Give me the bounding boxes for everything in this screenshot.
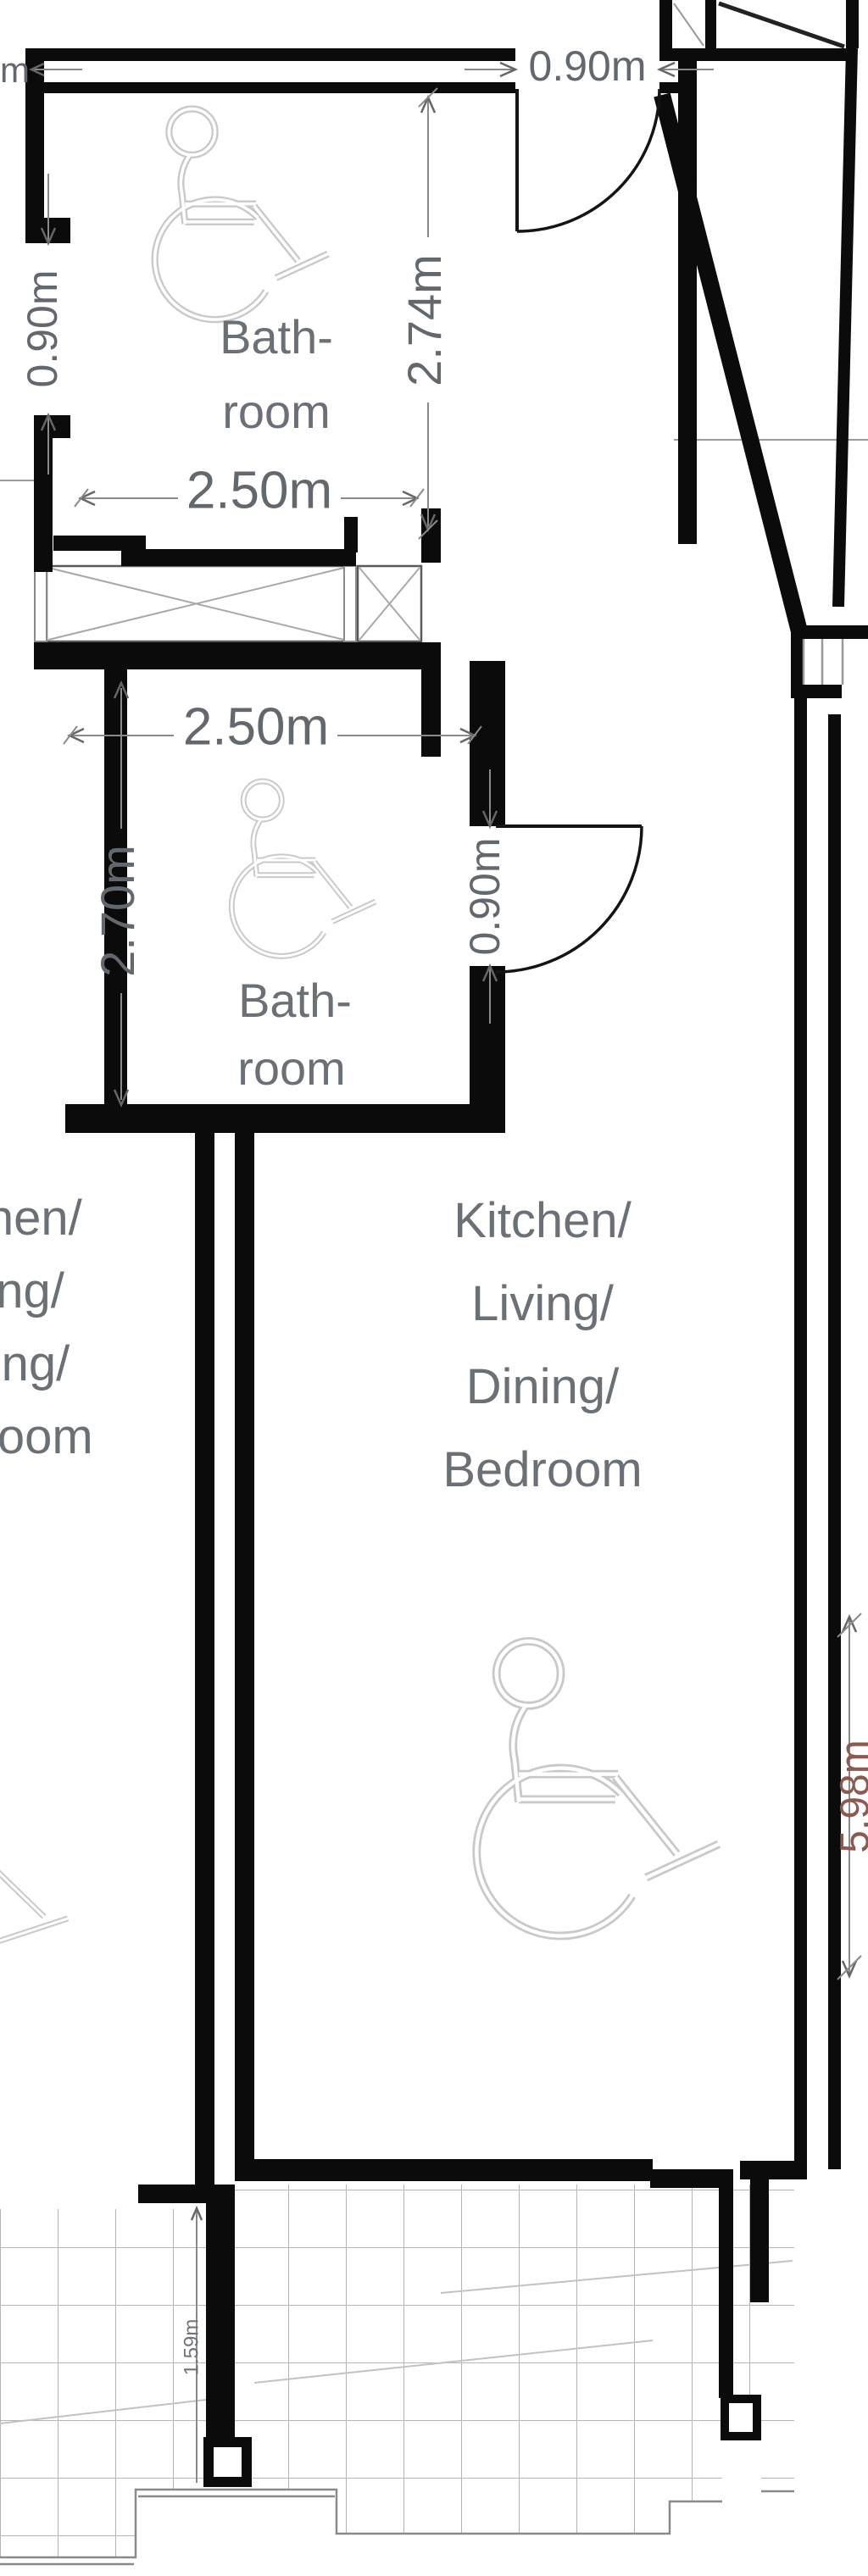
room-label-bath2-line2: room <box>237 1041 346 1095</box>
wall-main-left <box>235 1133 254 2169</box>
room-label-bath2-line1: Bath- <box>238 974 352 1027</box>
bath2-door-swing-arc <box>496 826 642 972</box>
entry-door-swing-arc <box>517 89 659 231</box>
room-label-neighbor-line1: Kitchen/ <box>0 1191 83 1246</box>
void-shaft-right <box>344 566 421 641</box>
wall-bath2-right-upper <box>470 661 505 826</box>
wall-main-bottom <box>235 2159 653 2181</box>
top-cell-braces <box>674 3 844 47</box>
room-label-bath1-line1: Bath- <box>220 310 333 364</box>
wheelchair-icon-bath1 <box>155 109 328 320</box>
wall-bath2-bottom <box>65 1104 505 1133</box>
wall-bath2-top <box>34 642 421 669</box>
room-label-main-line1: Kitchen/ <box>453 1193 632 1248</box>
room-label-neighbor-line2: Living/ <box>0 1263 65 1319</box>
wall-bath1-right <box>678 48 697 544</box>
dim-bath2-door: 0.90m <box>461 838 509 956</box>
wall-bath1-left-lower <box>34 438 53 572</box>
entry-door <box>517 89 659 231</box>
window-mullions <box>804 639 843 685</box>
dim-right-side: 5.98m <box>833 1740 868 1852</box>
room-label-main-line2: Living/ <box>471 1276 615 1331</box>
dim-bath1-depth: 2.74m <box>398 254 451 386</box>
wall-neighbor-right <box>195 1133 214 2192</box>
column-divider-end <box>203 2437 252 2487</box>
void-shaft-left <box>35 566 346 641</box>
room-label-main-line4: Bedroom <box>442 1442 642 1497</box>
extension-lines <box>0 440 868 480</box>
dim-bath1-width: 2.50m <box>186 461 332 519</box>
column-main <box>721 2395 761 2440</box>
floor-plan-canvas: m 0.90m 0.90m 2.50m 2.74m Bath- room 2.5… <box>0 0 868 2576</box>
terrace-left <box>0 2209 206 2557</box>
dim-bath1-side-door: 0.90m <box>19 270 66 388</box>
wall-stub <box>421 508 441 563</box>
dimension-graphics <box>31 63 861 2483</box>
room-label-main-line3: Dining/ <box>466 1359 620 1414</box>
wall-top-outer-left <box>25 48 515 61</box>
wheelchair-icon-main <box>476 1641 719 1936</box>
dim-entry-door: 0.90m <box>529 42 647 90</box>
bath2-door <box>496 826 642 972</box>
dim-bath2-width: 2.50m <box>183 697 329 756</box>
room-label-bath1-line2: room <box>222 385 331 438</box>
wheelchair-icon-bath2 <box>231 781 376 956</box>
wheelchair-icon-neighbor-clipped <box>0 1857 68 1942</box>
wall-right-outer <box>828 714 841 2169</box>
room-label-neighbor-line3: Dining/ <box>0 1336 70 1391</box>
wall-right-inner <box>794 697 807 2169</box>
dim-bath2-depth: 2.70m <box>91 845 144 977</box>
dim-fragment-top-left: m <box>0 50 30 90</box>
wall-pilaster <box>421 642 441 757</box>
terrace-right <box>235 2185 794 2534</box>
wall-top-inner <box>44 82 515 93</box>
wall-bath2-right-lower <box>470 994 505 1104</box>
wall-terrace-divider <box>206 2201 235 2440</box>
floor-plan-svg: m 0.90m 0.90m 2.50m 2.74m Bath- room 2.5… <box>0 0 868 2576</box>
dim-terrace: 1.59m <box>180 2319 203 2376</box>
room-label-neighbor-line4: Bedroom <box>0 1409 93 1464</box>
